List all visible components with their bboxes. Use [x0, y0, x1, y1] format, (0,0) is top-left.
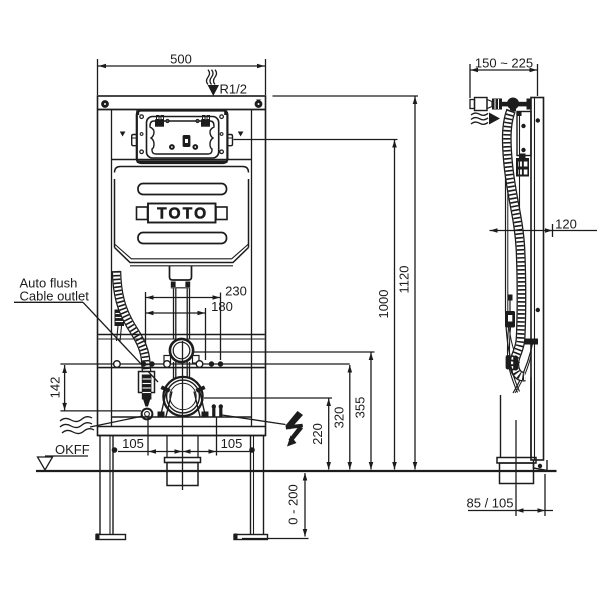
svg-text:85 / 105: 85 / 105 [467, 496, 514, 511]
svg-text:120: 120 [555, 217, 577, 232]
svg-text:220: 220 [310, 423, 325, 445]
svg-text:R1/2: R1/2 [220, 82, 247, 97]
svg-text:500: 500 [170, 52, 192, 67]
svg-text:1000: 1000 [376, 290, 391, 319]
svg-text:105: 105 [122, 436, 144, 451]
svg-text:OKFF: OKFF [55, 442, 90, 457]
svg-text:355: 355 [353, 397, 368, 419]
svg-text:320: 320 [332, 407, 347, 429]
svg-text:1120: 1120 [397, 266, 412, 294]
svg-text:TOTO: TOTO [157, 205, 208, 222]
svg-text:142: 142 [48, 377, 63, 399]
svg-text:0 - 200: 0 - 200 [286, 484, 301, 524]
svg-text:150 ~ 225: 150 ~ 225 [475, 56, 533, 71]
svg-text:105: 105 [221, 436, 243, 451]
svg-text:230: 230 [225, 284, 247, 299]
svg-text:Cable outlet: Cable outlet [20, 289, 90, 304]
svg-text:180: 180 [211, 299, 233, 314]
